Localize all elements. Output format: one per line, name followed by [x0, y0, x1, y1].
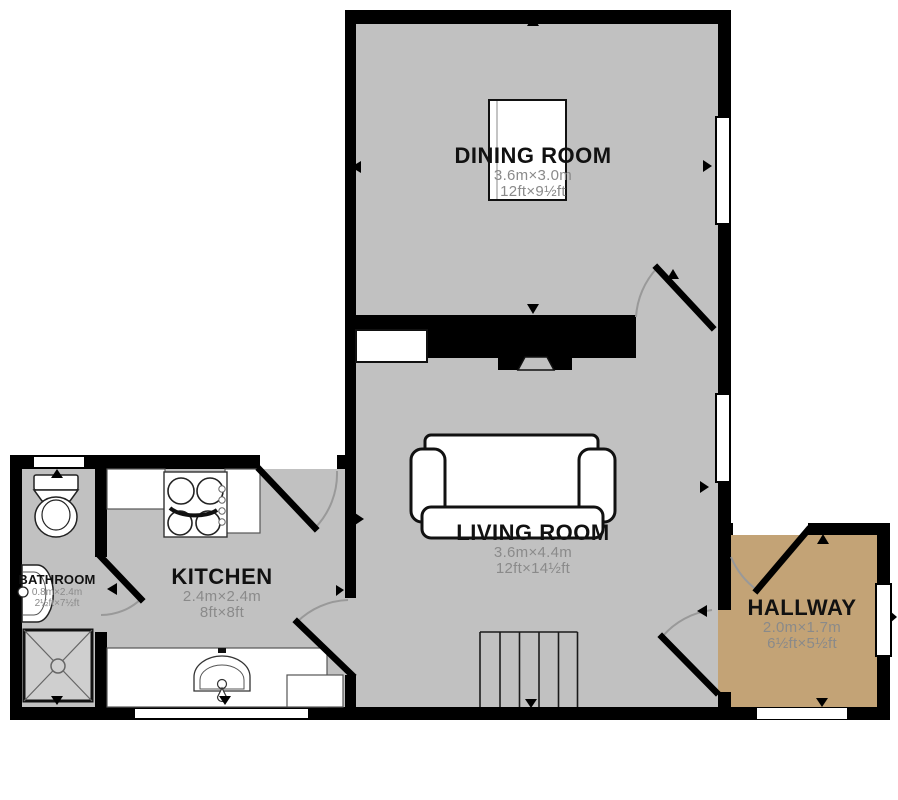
room-name: BATHROOM — [0, 572, 157, 587]
sideboard — [356, 330, 427, 362]
room-dimensions-metric: 3.6m×4.4m — [408, 545, 658, 561]
toilet — [34, 475, 78, 537]
window-bathroom — [33, 456, 85, 468]
room-dimensions-metric: 3.6m×3.0m — [408, 168, 658, 184]
room-name: DINING ROOM — [408, 144, 658, 168]
room-dimensions-imperial: 12ft×14½ft — [408, 561, 658, 577]
living-room-label: LIVING ROOM 3.6m×4.4m 12ft×14½ft — [408, 521, 658, 576]
window-kitchen-bottom — [135, 709, 308, 718]
stove — [164, 472, 227, 537]
window-living-right — [716, 394, 730, 482]
bathroom-label: BATHROOM 0.8m×2.4m 2½ft×7½ft — [0, 572, 157, 609]
fireplace-hearth — [518, 357, 554, 370]
room-dimensions-imperial: 2½ft×7½ft — [0, 598, 157, 609]
room-dimensions-imperial: 12ft×9½ft — [408, 184, 658, 200]
opening-kitchen-back-door — [260, 455, 337, 469]
opening-hallway-bottom-door — [757, 708, 847, 719]
wall-top — [345, 10, 731, 24]
room-dimensions-metric: 2.0m×1.7m — [702, 620, 898, 636]
floorplan-page: DINING ROOM 3.6m×3.0m 12ft×9½ft LIVING R… — [0, 0, 898, 800]
opening-front-door — [733, 523, 808, 535]
room-dimensions-metric: 0.8m×2.4m — [0, 587, 157, 598]
room-name: HALLWAY — [702, 596, 898, 620]
window-dining-right — [716, 117, 730, 224]
opening-kitchen-door — [345, 598, 356, 675]
dining-room-label: DINING ROOM 3.6m×3.0m 12ft×9½ft — [408, 144, 658, 199]
room-dimensions-imperial: 6½ft×5½ft — [702, 636, 898, 652]
shower — [24, 630, 92, 701]
hallway-label: HALLWAY 2.0m×1.7m 6½ft×5½ft — [702, 596, 898, 651]
room-name: LIVING ROOM — [408, 521, 658, 545]
floorplan-drawing — [0, 0, 898, 800]
